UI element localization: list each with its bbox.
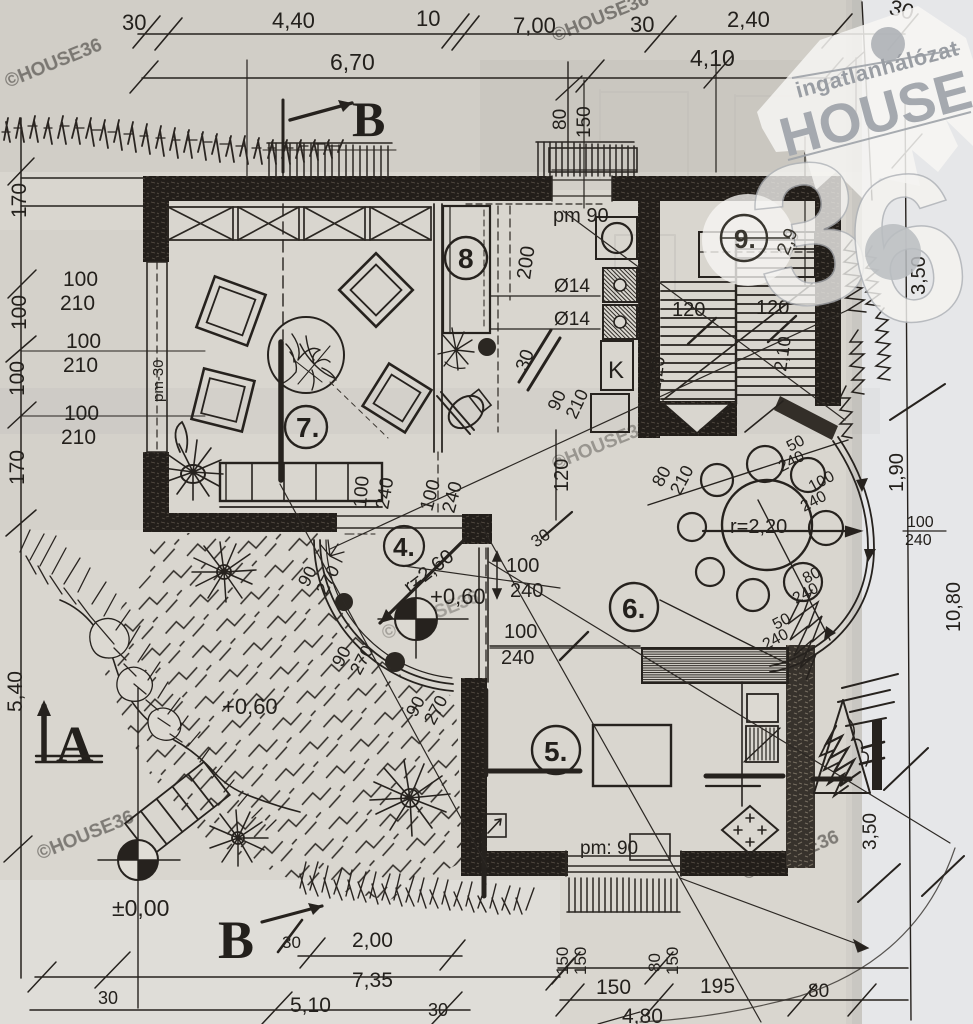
svg-text:100: 100 [350, 475, 374, 508]
svg-text:100: 100 [504, 621, 537, 643]
svg-text:B: B [218, 910, 254, 970]
svg-text:150: 150 [596, 976, 631, 999]
svg-text:100: 100 [66, 330, 101, 353]
svg-text:6.: 6. [622, 593, 645, 624]
svg-text:10: 10 [416, 6, 440, 31]
svg-text:4,10: 4,10 [690, 45, 735, 71]
svg-text:240: 240 [905, 532, 932, 549]
svg-text:7,00: 7,00 [513, 13, 556, 38]
svg-text:30: 30 [428, 1000, 448, 1020]
svg-text:4.: 4. [393, 532, 415, 562]
svg-text:5,10: 5,10 [290, 994, 331, 1017]
svg-text:120: 120 [551, 459, 573, 492]
svg-text:+0,60: +0,60 [430, 584, 486, 609]
svg-text:100: 100 [506, 555, 539, 577]
svg-text:100: 100 [6, 361, 29, 396]
svg-text:80: 80 [645, 953, 664, 972]
svg-text:80: 80 [808, 981, 829, 1002]
svg-text:2,40: 2,40 [727, 7, 770, 32]
svg-text:A: A [56, 717, 94, 774]
svg-text:7,35: 7,35 [352, 969, 393, 992]
svg-text:7.: 7. [296, 412, 319, 443]
svg-text:5,40: 5,40 [4, 671, 27, 712]
svg-text:100: 100 [63, 268, 98, 291]
svg-text:±0,00: ±0,00 [112, 895, 169, 921]
svg-text:100: 100 [8, 295, 31, 330]
svg-text:80: 80 [550, 109, 571, 130]
svg-text:170: 170 [8, 183, 31, 218]
svg-text:240: 240 [501, 647, 534, 669]
svg-text:210: 210 [61, 426, 96, 449]
svg-text:+0,60: +0,60 [222, 694, 278, 719]
svg-text:30: 30 [122, 10, 146, 35]
svg-text:B: B [352, 91, 385, 147]
svg-text:pm-30: pm-30 [150, 359, 167, 402]
svg-text:150: 150 [574, 106, 595, 138]
svg-text:30: 30 [630, 12, 654, 37]
svg-text:170: 170 [6, 450, 29, 485]
svg-text:195: 195 [700, 975, 735, 998]
svg-text:200: 200 [513, 245, 539, 281]
svg-text:5.: 5. [544, 736, 567, 767]
svg-text:1,90: 1,90 [886, 453, 908, 492]
svg-text:2,00: 2,00 [352, 929, 393, 952]
svg-text:210: 210 [60, 292, 95, 315]
svg-text:K: K [608, 357, 624, 384]
svg-text:100: 100 [907, 514, 934, 531]
svg-text:120: 120 [672, 299, 705, 321]
svg-text:Ø14: Ø14 [554, 309, 590, 330]
svg-text:6,70: 6,70 [330, 49, 375, 75]
svg-text:150: 150 [553, 947, 572, 975]
svg-text:100: 100 [64, 402, 99, 425]
svg-text:Ø14: Ø14 [554, 276, 590, 297]
svg-text:210: 210 [63, 354, 98, 377]
svg-text:4,40: 4,40 [272, 8, 315, 33]
svg-text:10,80: 10,80 [943, 582, 965, 632]
svg-text:r=2,20: r=2,20 [730, 516, 787, 538]
svg-text:8: 8 [458, 243, 474, 274]
svg-text:3,50: 3,50 [860, 813, 881, 850]
svg-text:30: 30 [98, 988, 118, 1008]
svg-text:9.: 9. [734, 224, 756, 254]
svg-text:150: 150 [663, 947, 682, 975]
svg-text:150: 150 [571, 947, 590, 975]
